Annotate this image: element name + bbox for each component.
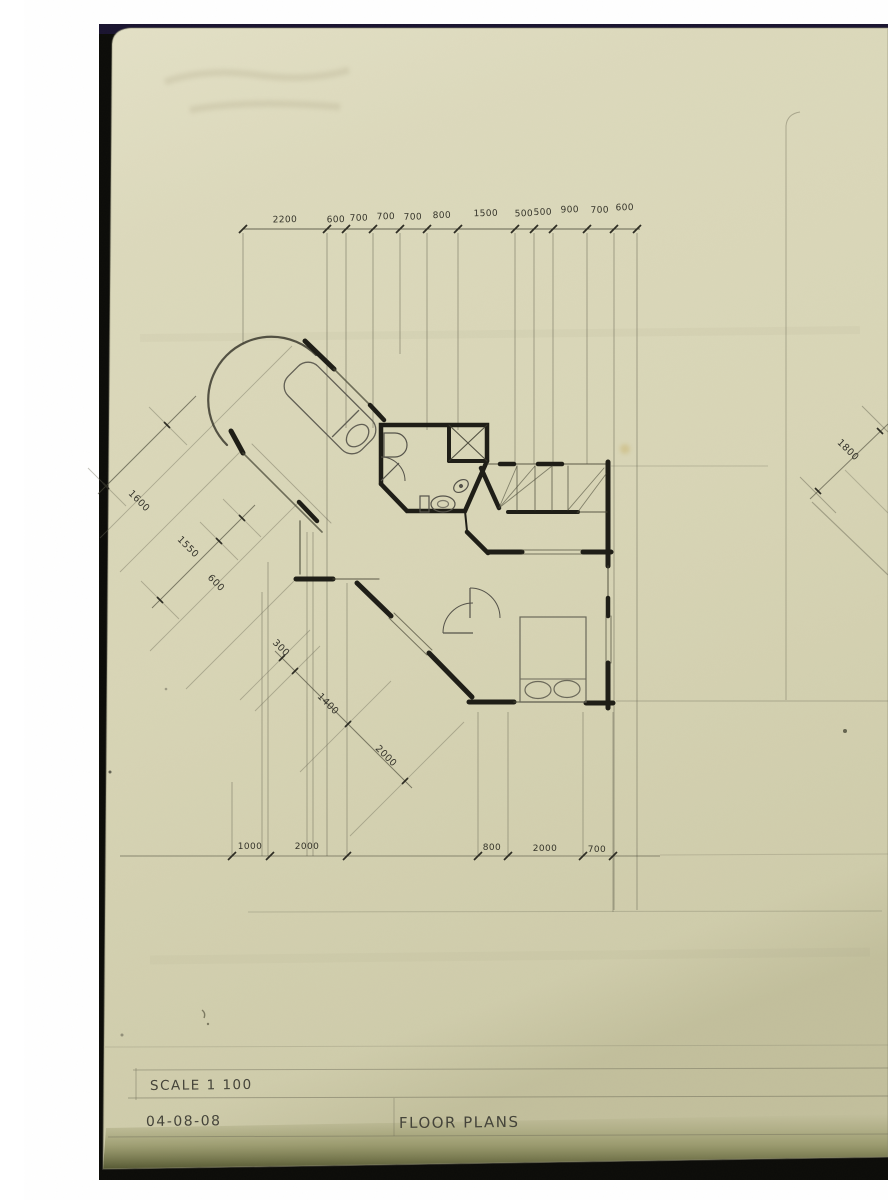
drawing-title: FLOOR PLANS — [399, 1113, 520, 1132]
dim-top-1: 600 — [327, 215, 346, 225]
dim-bottom-0: 1000 — [238, 842, 263, 852]
dim-top-10: 700 — [590, 205, 609, 215]
scale-label: SCALE 1 100 — [150, 1077, 253, 1094]
dim-bottom-2: 800 — [483, 843, 501, 853]
dim-top-6: 1500 — [473, 209, 498, 220]
dim-bottom-1: 2000 — [295, 842, 320, 852]
date-label: 04-08-08 — [146, 1113, 222, 1130]
dim-top-5: 800 — [433, 211, 452, 221]
dim-top-9: 900 — [560, 205, 579, 215]
dim-top-7: 500 — [515, 209, 534, 219]
dim-top-2: 700 — [350, 214, 369, 224]
dim-top-4: 700 — [404, 212, 423, 222]
dim-top-0: 2200 — [273, 215, 298, 226]
dim-bottom-4: 700 — [588, 845, 606, 855]
dim-top-3: 700 — [377, 212, 396, 222]
paper-sheet — [103, 28, 888, 1169]
dim-bottom-3: 2000 — [533, 844, 558, 854]
dim-top-11: 600 — [615, 203, 634, 213]
dim-top-8: 500 — [534, 208, 553, 218]
floor-plan-photo: 2200 600 700 700 700 800 1500 500 500 90… — [0, 0, 888, 1200]
